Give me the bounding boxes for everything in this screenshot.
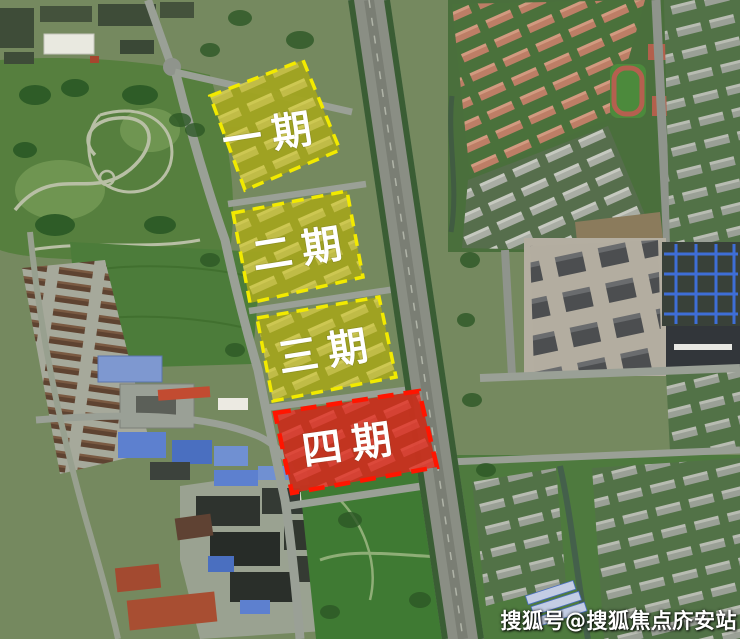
watermark: 搜狐号@搜狐焦点庎安站 bbox=[501, 605, 738, 635]
canal-north bbox=[451, 96, 454, 232]
white-roof-building bbox=[44, 34, 94, 54]
red-row-house bbox=[115, 564, 161, 592]
satellite-map-canvas: 一期 二期 三期 四期 bbox=[0, 0, 740, 639]
residential-district-east bbox=[448, 0, 740, 272]
blue-roof-building bbox=[98, 356, 162, 382]
satellite-map: 一期 二期 三期 四期 搜狐号@搜狐焦点庎安站 bbox=[0, 0, 740, 639]
